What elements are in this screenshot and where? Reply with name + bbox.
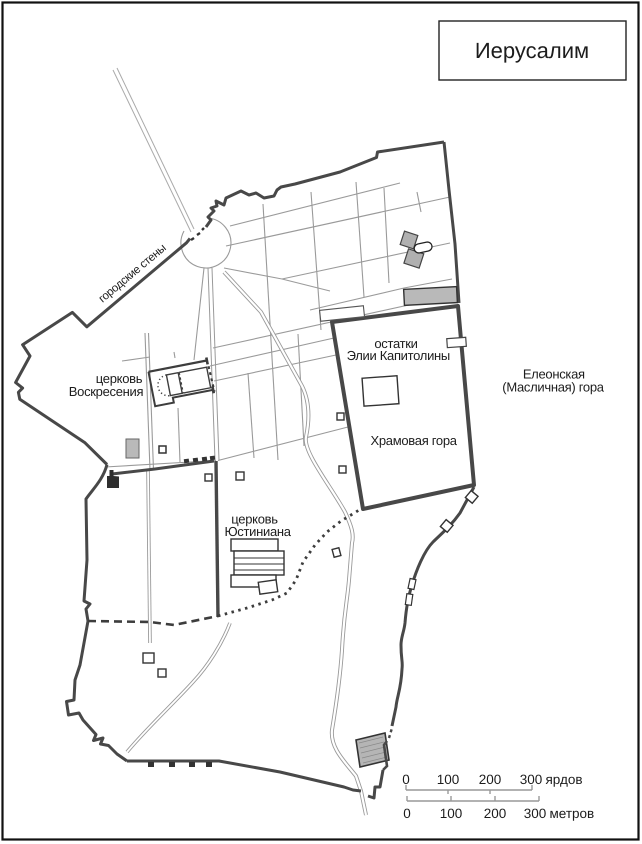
- svg-text:100: 100: [437, 772, 460, 787]
- svg-text:Храмовая гора: Храмовая гора: [371, 433, 458, 448]
- svg-text:200: 200: [479, 772, 502, 787]
- svg-text:100: 100: [440, 806, 463, 821]
- svg-text:Элии Капитолины: Элии Капитолины: [347, 348, 450, 363]
- svg-text:300: 300: [524, 806, 547, 821]
- svg-text:метров: метров: [550, 806, 595, 821]
- svg-text:Воскресения: Воскресения: [69, 384, 144, 399]
- svg-text:ярдов: ярдов: [546, 772, 583, 787]
- svg-text:0: 0: [403, 806, 411, 821]
- svg-text:200: 200: [484, 806, 507, 821]
- svg-text:Иерусалим: Иерусалим: [475, 38, 589, 63]
- svg-text:(Масличная) гора: (Масличная) гора: [502, 380, 604, 395]
- svg-text:Юстиниана: Юстиниана: [224, 524, 291, 539]
- svg-text:300: 300: [520, 772, 543, 787]
- svg-text:0: 0: [402, 772, 410, 787]
